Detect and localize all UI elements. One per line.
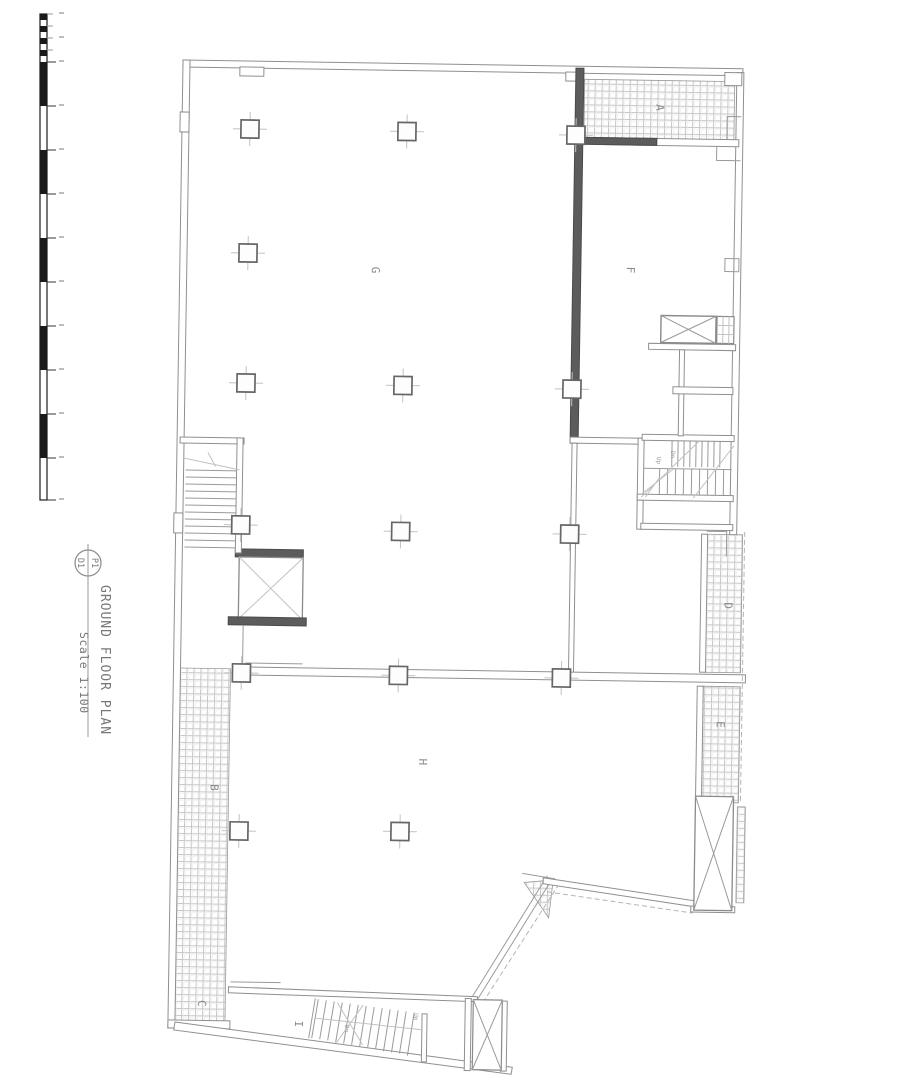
room-label-b: B	[208, 784, 221, 791]
drawing-scale: Scale 1:100	[77, 632, 91, 714]
stair-label-up-right: Up	[655, 457, 662, 465]
plan-drawing: A B C D E F G H I Dn Up Dn Up	[165, 60, 757, 1078]
room-label-c: C	[195, 1000, 208, 1007]
bubble-ref-bottom: D1	[75, 558, 85, 568]
terrace-hatch-b	[175, 668, 231, 1025]
room-label-g: G	[369, 267, 382, 274]
room-label-f: F	[624, 267, 637, 274]
stair-right	[641, 440, 734, 498]
stair-label-dn-right: Dn	[669, 451, 676, 459]
bubble-ref-top: P1	[89, 558, 99, 568]
interior-structural-walls	[227, 63, 755, 1075]
title-block: P1 D1 GROUND FLOOR PLAN Scale 1:100	[75, 544, 112, 737]
terrace-hatch-e	[700, 686, 740, 803]
stair-label-dn-bottom: Dn	[343, 1025, 350, 1033]
columns	[219, 112, 594, 854]
graphic-scale-bar	[40, 12, 64, 500]
elevator-shaft-f	[661, 316, 734, 344]
shaft-wedge	[472, 1000, 502, 1070]
stair-left	[178, 437, 244, 553]
room-label-d: D	[721, 602, 734, 609]
elevator-shaft-left	[228, 549, 308, 668]
shaft-bottom-right	[694, 796, 734, 911]
scale-bar-tick-marks	[59, 12, 64, 500]
terrace-hatch-sliver	[736, 807, 746, 903]
room-label-e: E	[714, 721, 727, 728]
room-label-a: A	[653, 104, 666, 111]
stair-label-up-bottom: Up	[412, 1013, 419, 1021]
room-label-h: H	[416, 758, 429, 765]
floor-plan-canvas: P1 D1 GROUND FLOOR PLAN Scale 1:100	[0, 0, 911, 1080]
room-label-i: I	[292, 1020, 305, 1027]
drawing-title: GROUND FLOOR PLAN	[97, 585, 112, 735]
